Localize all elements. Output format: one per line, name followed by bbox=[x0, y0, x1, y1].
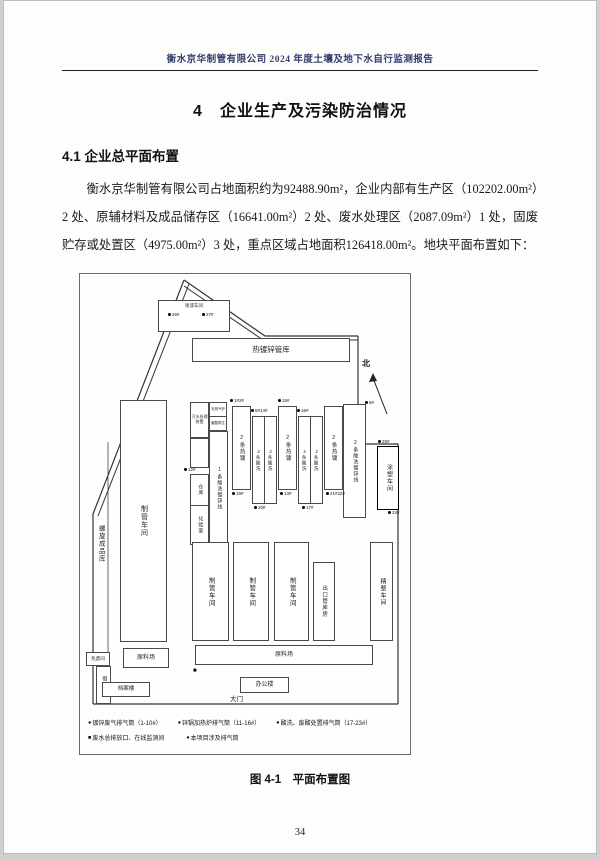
monitor-dot: 6# bbox=[365, 400, 374, 405]
dot-label: 24# bbox=[392, 510, 400, 515]
building-galv-pipe-warehouse: 热镀锌管库 bbox=[192, 338, 350, 362]
building-label: 精整车间 bbox=[378, 578, 385, 606]
dot-icon bbox=[168, 313, 171, 316]
gate-label: 大门 bbox=[230, 693, 243, 703]
building-pipe-shop-1: 制管车间 bbox=[120, 400, 167, 642]
dot-label: 19# bbox=[236, 491, 244, 496]
dot-label: 13# bbox=[284, 491, 292, 496]
monitor-dot: 15# bbox=[278, 398, 290, 403]
building-pickling-b2: 2条酸洗 bbox=[310, 416, 323, 504]
dot-label: 6# bbox=[369, 400, 374, 405]
body-paragraph: 衡水京华制管有限公司占地面积约为92488.90m²，企业内部有生产区（1022… bbox=[62, 175, 538, 259]
building-pickling-galv-line-1: 1条酸洗镀锌线 bbox=[209, 431, 228, 545]
circle-marker-icon: ● bbox=[186, 735, 189, 741]
dot-label: 16# bbox=[301, 408, 309, 413]
building-label: 制管车间 bbox=[139, 505, 147, 537]
monitor-dot: 5#14# bbox=[251, 408, 268, 413]
dot-icon bbox=[230, 399, 233, 402]
building-archive: 档案楼 bbox=[102, 682, 150, 697]
monitor-dot: 16# bbox=[297, 408, 309, 413]
monitor-dot: 25# bbox=[378, 439, 390, 444]
monitor-dot: 21#22# bbox=[326, 491, 345, 496]
small-box bbox=[190, 438, 209, 468]
building-label: 2条酸洗 bbox=[314, 449, 319, 472]
north-label: 北 bbox=[362, 358, 370, 369]
dot-icon bbox=[202, 313, 205, 316]
page-header-title: 衡水京华制管有限公司 2024 年度土壤及地下水自行监测报告 bbox=[62, 1, 538, 71]
dot-icon bbox=[280, 492, 283, 495]
circle-marker-icon: ● bbox=[178, 720, 181, 726]
monitor-dot: 26# bbox=[168, 312, 180, 317]
dot-icon bbox=[254, 506, 257, 509]
legend-item: ●锌锅加热炉排气筒（11-16#） bbox=[178, 718, 261, 727]
legend-item: ●镀锌废气排气筒（1-10#） bbox=[88, 718, 162, 727]
page-number: 34 bbox=[4, 827, 596, 838]
building-label: 仓库 bbox=[197, 484, 203, 496]
legend-item: ■废水总排放口、在线监测间 bbox=[88, 733, 164, 742]
building-label: 制管车间 bbox=[288, 577, 295, 607]
dot-label: 15# bbox=[282, 398, 290, 403]
building-hazardous-waste-room: 危废间 bbox=[86, 652, 110, 666]
legend-text: 本项目涉及排气筒 bbox=[191, 733, 239, 742]
dot-label: 20# bbox=[258, 505, 266, 510]
circle-marker-icon: ● bbox=[276, 720, 279, 726]
building-coating-shop: 涂塑车间 bbox=[377, 446, 399, 510]
building-label: 涂塑车间 bbox=[385, 464, 392, 492]
legend-row-2: ■废水总排放口、在线监测间 ●本项目涉及排气筒 bbox=[88, 733, 239, 742]
figure-caption: 图 4-1 平面布置图 bbox=[4, 771, 596, 787]
monitor-dot: 20# bbox=[254, 505, 266, 510]
building-hot-galv-a: 2条热镀 bbox=[232, 406, 251, 490]
building-warehouse: 仓库 bbox=[190, 474, 209, 506]
legend-text: 酸洗、废酸处置排气筒（17-23#） bbox=[281, 718, 372, 727]
building-pipe-shop-3: 制管车间 bbox=[233, 542, 269, 641]
building-pickling-a2: 2条酸洗 bbox=[264, 416, 277, 504]
dot-label: 27# bbox=[206, 312, 214, 317]
building-pipe-shop-4: 制管车间 bbox=[274, 542, 309, 641]
building-export-pipe-warehouse: 出口管库房 bbox=[313, 562, 335, 641]
building-label: 制管车间 bbox=[247, 577, 254, 607]
building-label: 2条热镀 bbox=[238, 435, 244, 462]
dot-icon bbox=[302, 506, 305, 509]
building-sewage-unit: 污水处理装置 bbox=[190, 402, 209, 438]
wastewater-outlet-marker: ■ bbox=[193, 668, 197, 674]
building-raw-yard-left: 原料场 bbox=[123, 648, 169, 668]
monitor-dot: 13# bbox=[280, 491, 292, 496]
legend-item: ●酸洗、废酸处置排气筒（17-23#） bbox=[276, 718, 371, 727]
subsection-heading: 4.1 企业总平面布置 bbox=[62, 145, 538, 165]
report-page: 衡水京华制管有限公司 2024 年度土壤及地下水自行监测报告 4 企业生产及污染… bbox=[3, 0, 597, 854]
monitor-dot: 12# bbox=[184, 467, 196, 472]
building-office: 办公楼 bbox=[240, 677, 289, 693]
site-plan-figure: 北 喷漆车间 热镀锌管库 螺旋成品库 制管车间 污水处理装置 天然气炉 废酸再生… bbox=[79, 273, 411, 755]
dot-label: 1#2# bbox=[234, 398, 244, 403]
legend-row-1: ●镀锌废气排气筒（1-10#） ●锌锅加热炉排气筒（11-16#） ●酸洗、废酸… bbox=[88, 718, 371, 727]
dot-icon bbox=[297, 409, 300, 412]
building-pickling-galv-line-2: 2条酸洗镀锌线 bbox=[343, 404, 366, 518]
building-finishing-shop: 精整车间 bbox=[370, 542, 393, 641]
dot-label: 12# bbox=[188, 467, 196, 472]
building-raw-yard-right: 原料场 bbox=[195, 645, 373, 665]
dot-label: 21#22# bbox=[330, 491, 345, 496]
building-spiral-product-warehouse: 螺旋成品库 bbox=[92, 479, 109, 609]
building-label: 2条酸洗 bbox=[302, 449, 307, 472]
building-hot-galv-b: 2条热镀 bbox=[278, 406, 297, 490]
dot-icon bbox=[326, 492, 329, 495]
building-label: 2条热镀 bbox=[284, 435, 290, 462]
dot-icon bbox=[388, 511, 391, 514]
building-label: 2条酸洗 bbox=[256, 449, 261, 472]
building-hot-galv-c: 2条热镀 bbox=[324, 406, 343, 490]
dot-icon bbox=[278, 399, 281, 402]
dot-icon bbox=[365, 401, 368, 404]
dot-icon bbox=[232, 492, 235, 495]
monitor-dot: 27# bbox=[202, 312, 214, 317]
building-lab: 化验室 bbox=[190, 505, 209, 545]
legend-text: 锌锅加热炉排气筒（11-16#） bbox=[182, 718, 260, 727]
building-label: 2条热镀 bbox=[330, 435, 336, 462]
dot-label: 5#14# bbox=[255, 408, 268, 413]
building-label: 1条酸洗镀锌线 bbox=[216, 467, 222, 510]
building-gas-furnace: 天然气炉 bbox=[209, 402, 227, 417]
monitor-dot: 24# bbox=[388, 510, 400, 515]
monitor-dot: 19# bbox=[232, 491, 244, 496]
dot-label: 26# bbox=[172, 312, 180, 317]
dot-label: 17# bbox=[306, 505, 314, 510]
building-label: 2条酸洗镀锌线 bbox=[352, 440, 358, 483]
building-label: 化验室 bbox=[197, 516, 203, 534]
monitor-dot: 17# bbox=[302, 505, 314, 510]
monitor-dot: 1#2# bbox=[230, 398, 244, 403]
building-label: 制管车间 bbox=[207, 577, 214, 607]
square-marker-icon: ■ bbox=[88, 735, 91, 741]
building-pipe-shop-2: 制管车间 bbox=[192, 542, 229, 641]
building-label: 2条酸洗 bbox=[268, 449, 273, 472]
legend-text: 废水总排放口、在线监测间 bbox=[92, 733, 164, 742]
dot-icon bbox=[251, 409, 254, 412]
dot-label: 25# bbox=[382, 439, 390, 444]
building-label: 出口管库房 bbox=[321, 585, 327, 618]
dot-icon bbox=[378, 440, 381, 443]
section-heading: 4 企业生产及污染防治情况 bbox=[4, 97, 596, 121]
building-acid-regen: 废酸再生 bbox=[209, 416, 227, 431]
dot-icon bbox=[184, 468, 187, 471]
circle-marker-icon: ● bbox=[88, 720, 91, 726]
legend-text: 镀锌废气排气筒（1-10#） bbox=[92, 718, 161, 727]
legend-item: ●本项目涉及排气筒 bbox=[186, 733, 238, 742]
